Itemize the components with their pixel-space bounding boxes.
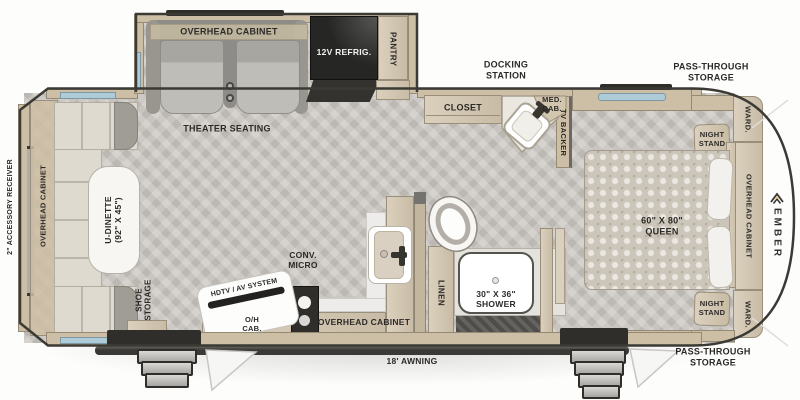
entry-door-swing-1 (206, 350, 256, 390)
label-awning: 18' AWNING (372, 356, 452, 366)
label-theater-seating: THEATER SEATING (162, 124, 292, 135)
label-accessory-receiver: 2" ACCESSORY RECEIVER (7, 122, 15, 292)
label-refrigerator: 12V REFRIG. (309, 47, 379, 57)
label-shower: 30" X 36" SHOWER (465, 289, 527, 309)
label-pantry: PANTRY (380, 18, 406, 80)
label-u-dinette: U-DINETTE (92" X 45") (103, 187, 123, 253)
brand-logo: EMBER (762, 190, 792, 272)
floorplan-canvas: HDTV / AV SYSTEM (0, 0, 800, 400)
label-oh-cab: O/H CAB. (236, 316, 268, 334)
label-kitchen-overhead-cabinet: OVERHEAD CABINET (304, 317, 424, 327)
label-rear-overhead-cabinet: OVERHEAD CABINET (40, 131, 49, 281)
label-bedroom-overhead-cabinet: OVERHEAD CABINET (735, 142, 763, 290)
label-shoe-storage: SHOE STORAGE (135, 276, 154, 324)
label-ward-top: WARD. (735, 96, 761, 142)
label-pass-through-bottom: PASS-THROUGH STORAGE (670, 346, 756, 367)
label-slide-overhead-cabinet: OVERHEAD CABINET (159, 27, 299, 38)
brand-name: EMBER (769, 204, 785, 264)
label-conv-micro: CONV. MICRO (281, 250, 325, 270)
label-pass-through-top: PASS-THROUGH STORAGE (668, 61, 754, 82)
label-docking-station: DOCKING STATION (475, 59, 537, 80)
label-linen: LINEN (429, 248, 453, 338)
label-closet: CLOSET (433, 103, 493, 114)
label-queen-bed: 60" X 80" QUEEN (631, 215, 693, 236)
label-night-stand-bottom: NIGHT STAND (691, 300, 733, 318)
label-night-stand-top: NIGHT STAND (691, 131, 733, 149)
label-ward-bottom: WARD. (735, 290, 761, 338)
brand-chevron-icon (769, 190, 785, 204)
label-tv-backer: TV BACKER (555, 98, 572, 168)
